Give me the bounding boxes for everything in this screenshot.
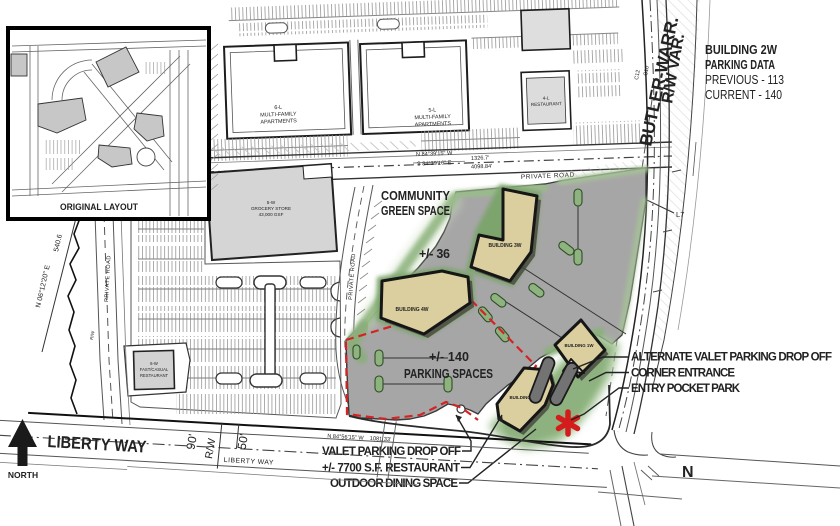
svg-text:+/- 36: +/- 36	[419, 247, 450, 261]
svg-text:43,000 GSF: 43,000 GSF	[259, 212, 284, 217]
svg-text:+/- 140: +/- 140	[429, 350, 469, 364]
svg-text:CURRENT - 140: CURRENT - 140	[705, 88, 782, 102]
svg-text:COMMUNITY: COMMUNITY	[381, 189, 451, 203]
svg-text:OUTDOOR DINING SPACE: OUTDOOR DINING SPACE	[330, 478, 458, 490]
svg-text:PARKING DATA: PARKING DATA	[705, 58, 775, 72]
svg-text:BUILDING 1W: BUILDING 1W	[564, 343, 594, 348]
svg-text:PARKING SPACES: PARKING SPACES	[404, 367, 493, 381]
svg-text:6-W: 6-W	[150, 361, 158, 366]
svg-text:5-W: 5-W	[267, 200, 276, 205]
svg-text:L7: L7	[676, 210, 684, 219]
svg-text:ALTERNATE VALET PARKING DROP O: ALTERNATE VALET PARKING DROP OFF	[631, 352, 832, 364]
svg-text:4098.84': 4098.84'	[471, 164, 492, 171]
svg-text:GREEN SPACE: GREEN SPACE	[381, 204, 450, 218]
svg-text:PREVIOUS - 113: PREVIOUS - 113	[705, 73, 784, 87]
svg-text:6-L: 6-L	[274, 105, 282, 111]
svg-text:1326.7': 1326.7'	[471, 155, 489, 162]
svg-text:90': 90'	[183, 433, 200, 451]
svg-text:RESTAURANT: RESTAURANT	[140, 373, 169, 378]
svg-text:APARTMENTS: APARTMENTS	[415, 121, 452, 128]
svg-text:5-L: 5-L	[428, 107, 436, 113]
svg-text:BUILDING 4W: BUILDING 4W	[395, 307, 428, 313]
svg-text:CORNER ENTRANCE: CORNER ENTRANCE	[631, 368, 735, 380]
svg-text:NORTH: NORTH	[8, 470, 38, 480]
svg-text:N: N	[682, 464, 694, 481]
svg-text:MULTI-FAMILY: MULTI-FAMILY	[260, 111, 297, 118]
svg-text:BUILDING 2W: BUILDING 2W	[705, 43, 777, 57]
svg-text:4-L: 4-L	[543, 95, 550, 100]
svg-text:FAST/CASUAL: FAST/CASUAL	[140, 367, 169, 372]
svg-text:GROCERY STORE: GROCERY STORE	[251, 206, 291, 211]
svg-text:APARTMENTS: APARTMENTS	[260, 118, 297, 125]
svg-text:ENTRY POCKET PARK: ENTRY POCKET PARK	[631, 383, 741, 395]
svg-text:BUILDING 3W: BUILDING 3W	[488, 243, 521, 249]
svg-text:MULTI-FAMILY: MULTI-FAMILY	[414, 114, 451, 121]
svg-text:S 84°39'16" E: S 84°39'16" E	[417, 160, 452, 167]
svg-text:ORIGINAL LAYOUT: ORIGINAL LAYOUT	[60, 202, 138, 213]
